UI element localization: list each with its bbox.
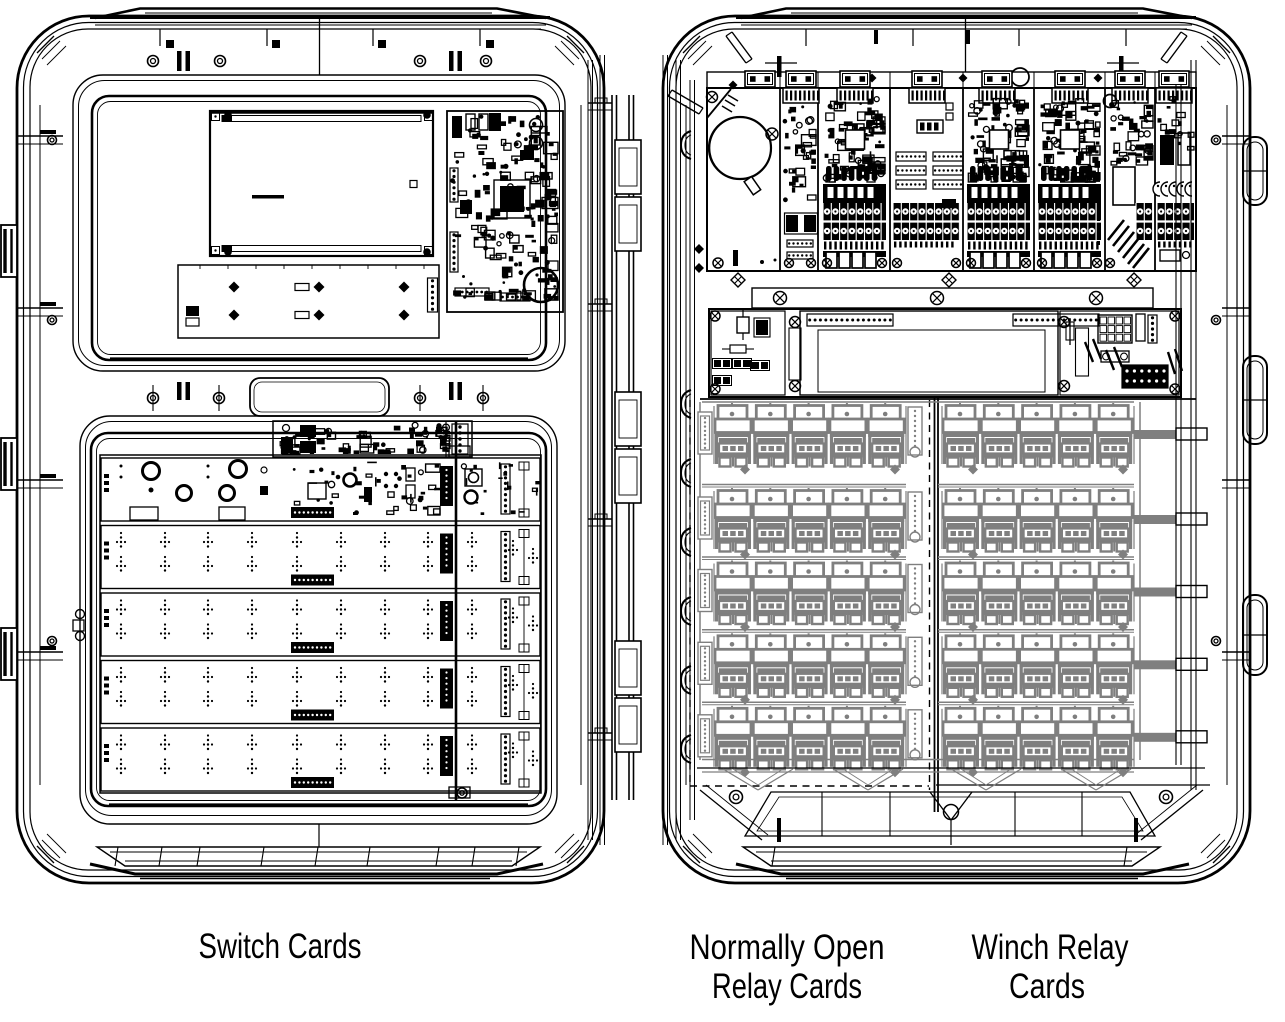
svg-text:Switch Cards: Switch Cards [199,927,362,966]
svg-text:Relay Cards: Relay Cards [712,967,862,1006]
svg-text:Winch Relay: Winch Relay [972,928,1129,967]
svg-text:Cards: Cards [1009,967,1085,1006]
svg-text:Normally Open: Normally Open [690,928,885,967]
